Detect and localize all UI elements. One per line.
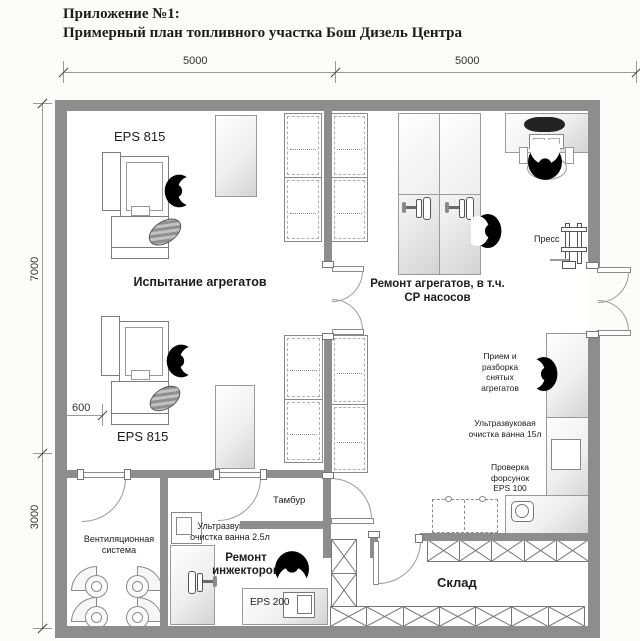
dimension-line-left [42, 103, 43, 629]
cabinet [331, 336, 368, 473]
intake-label: Прием и разборка снятых агрегатов [470, 351, 530, 394]
wall-middle-lower [324, 334, 332, 474]
worker-icon [266, 549, 318, 591]
eps100-label: Проверка форсунок EPS 100 [482, 462, 538, 494]
wall-tambour-south [240, 521, 331, 529]
dim-top-right: 5000 [455, 55, 479, 67]
storage-rack [331, 539, 357, 607]
dim-side-lower: 3000 [29, 497, 41, 537]
wall-horizontal [126, 470, 218, 478]
room-testing-label: Испытание агрегатов [118, 275, 282, 291]
wall-left [55, 100, 67, 638]
wall-tambour-east [323, 478, 331, 521]
worker-icon [165, 336, 199, 386]
room-tambour-label: Тамбур [273, 495, 305, 507]
door-leaf [218, 472, 262, 478]
floor-plan: Приложение №1: Примерный план топливного… [0, 0, 640, 641]
worker-icon [471, 205, 503, 257]
ultrasonic-bath-15 [551, 439, 581, 470]
work-table [215, 385, 255, 469]
door-leaf [331, 518, 374, 524]
storage-rack [330, 606, 585, 627]
eps815-machine [101, 316, 120, 376]
work-table [215, 115, 257, 197]
fan-icon [71, 597, 108, 629]
fan-icon [126, 566, 163, 598]
door-arc [598, 272, 629, 303]
cabinet [284, 336, 323, 463]
wall-middle-upper [324, 111, 332, 266]
cabinet [331, 114, 368, 242]
fan-icon [71, 566, 108, 598]
dim-offset: 600 [72, 402, 90, 414]
wall-right [588, 332, 600, 638]
dim-side-upper: 7000 [29, 249, 41, 289]
room-repair-label-2: СР насосов [360, 291, 515, 305]
room-repair-label-1: Ремонт агрегатов, в т.ч. [360, 277, 515, 291]
door-arc [598, 300, 629, 331]
wall-below-tambour [323, 529, 331, 558]
storage-rack [427, 539, 589, 562]
eps815-bottom-label: EPS 815 [117, 429, 168, 445]
eps815-machine [102, 152, 121, 211]
worker-icon [163, 166, 197, 216]
pump-holder-icon [403, 196, 433, 220]
page-subtitle: Примерный план топливного участка Бош Ди… [63, 24, 462, 43]
press-label: Пресс [534, 234, 559, 245]
wall-right [588, 110, 600, 268]
dimension-line-top [63, 72, 637, 73]
wall-warehouse-north [420, 533, 600, 541]
dim-top-left: 5000 [183, 55, 207, 67]
room-warehouse-label: Склад [437, 575, 477, 591]
eps815-top-label: EPS 815 [114, 129, 165, 145]
door-leaf [82, 472, 127, 478]
wall-top [55, 100, 600, 111]
worker-icon [527, 348, 559, 400]
eps200-label: EPS 200 [250, 597, 289, 610]
parts-cabinet [432, 499, 498, 533]
worker-icon [519, 140, 571, 182]
room-ventilation-label: Вентиляционная система [79, 534, 159, 557]
fan-icon [126, 597, 163, 629]
cabinet [284, 114, 322, 242]
wall-bottom [55, 626, 600, 638]
page-title: Приложение №1: [63, 5, 180, 24]
pump-test-bench [398, 113, 440, 275]
ultrasonic15-label: Ультразвуковая очистка ванна 15л [468, 418, 542, 439]
wall-vent-divider [160, 478, 168, 626]
laptop-icon [524, 117, 565, 132]
